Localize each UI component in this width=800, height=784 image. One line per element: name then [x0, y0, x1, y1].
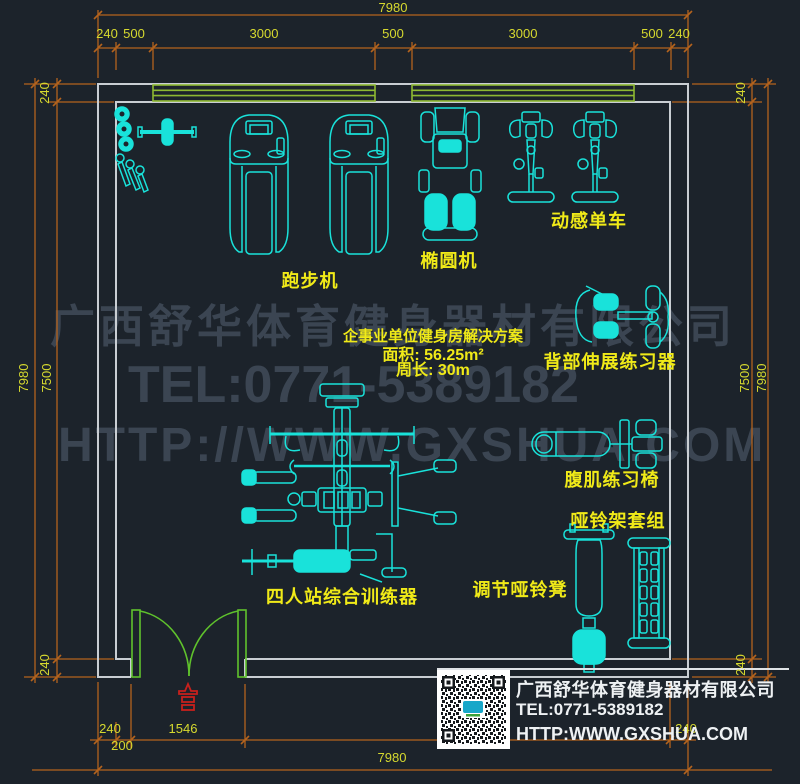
dumbbell-rack-icon: [628, 538, 670, 648]
dim-bottom-total: 7980: [370, 751, 414, 765]
dim-left-7500: 7500: [40, 356, 54, 400]
qr-code: [437, 670, 510, 749]
multi-station-trainer-icon: [242, 384, 456, 582]
treadmill-1-icon: [230, 115, 288, 254]
footer-tel: TEL:0771-5389182: [516, 700, 663, 720]
label-spin-bike: 动感单车: [489, 212, 689, 230]
window-top-right: [412, 85, 634, 101]
footer-company: 广西舒华体育健身器材有限公司: [516, 676, 775, 702]
dim-top-500b: 500: [371, 27, 415, 41]
dim-left-240-top: 240: [38, 71, 52, 115]
ab-chair-icon: [532, 420, 662, 468]
label-ab-chair: 腹肌练习椅: [512, 471, 712, 489]
dim-left-7980: 7980: [17, 356, 31, 400]
corner-accessories-icon: [115, 107, 196, 192]
dim-bottom-1546: 1546: [161, 722, 205, 736]
dim-top-3000a: 3000: [242, 27, 286, 41]
spin-bike-2-icon: [572, 112, 618, 202]
treadmill-2-icon: [330, 115, 388, 254]
dim-top-240r: 240: [657, 27, 701, 41]
dim-left-240-bottom: 240: [38, 643, 52, 687]
spin-bike-1-icon: [508, 112, 554, 202]
label-treadmill: 跑步机: [210, 272, 410, 290]
dim-bottom-200: 200: [100, 739, 144, 753]
dim-bottom-240l: 240: [88, 722, 132, 736]
dim-right-7980: 7980: [755, 356, 769, 400]
dim-right-240-top: 240: [734, 71, 748, 115]
floor-plan-svg: [0, 0, 800, 784]
cad-floor-plan: 广西舒华体育健身器材有限公司 TEL:0771-5389182 HTTP://W…: [0, 0, 800, 784]
double-door: [132, 610, 246, 677]
label-dumbbell-rack: 哑铃架套组: [518, 512, 718, 530]
dim-top-3000b: 3000: [501, 27, 545, 41]
dimension-lines: [24, 10, 776, 776]
back-extension-icon: [576, 286, 669, 348]
footer-web: HTTP:WWW.GXSHUA.COM: [516, 724, 748, 745]
dim-top-500a: 500: [112, 27, 156, 41]
dim-right-7500: 7500: [738, 356, 752, 400]
plan-perimeter: 周长: 30m: [313, 356, 553, 380]
dim-top-total: 7980: [371, 1, 415, 15]
label-elliptical: 椭圆机: [349, 252, 549, 270]
window-top-left: [153, 85, 375, 101]
label-dumbbell-bench: 调节哑铃凳: [420, 581, 620, 599]
label-multi-station: 四人站综合训练器: [242, 588, 442, 606]
elliptical-icon: [419, 108, 481, 240]
entrance-marker-icon: [179, 684, 197, 710]
